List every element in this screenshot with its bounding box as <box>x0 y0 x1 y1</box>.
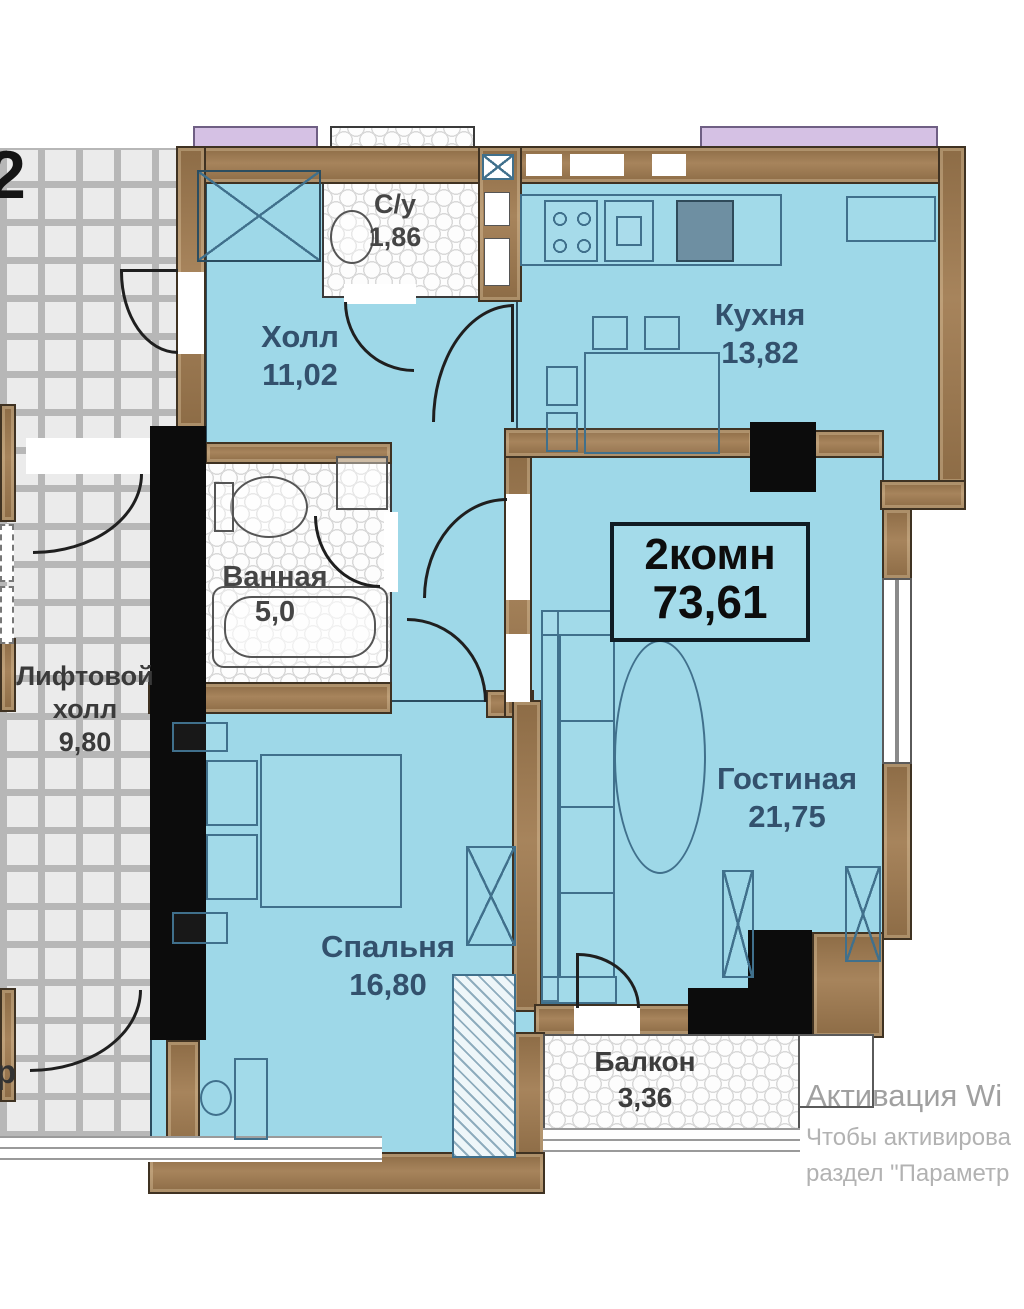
room-label-bathroom: Ванная 5,0 <box>205 560 345 631</box>
corridor-partial-text: р <box>0 1052 36 1092</box>
elevator-door <box>0 586 14 644</box>
wall-slot <box>652 154 686 176</box>
toilet <box>230 476 308 538</box>
door-opening <box>506 494 530 600</box>
toilet-tank <box>214 482 234 532</box>
kitchen-sink-bowl <box>616 216 642 246</box>
hall-name: Холл <box>230 318 370 356</box>
kitchen-counter-right <box>846 196 936 242</box>
watermark-line2: Чтобы активирова <box>806 1124 1011 1152</box>
chair <box>644 316 680 350</box>
wall <box>882 762 912 940</box>
wc-name: С/у <box>330 188 460 221</box>
room-label-kitchen: Кухня 13,82 <box>690 296 830 372</box>
nightstand <box>172 722 228 752</box>
apartment-badge: 2комн 73,61 <box>610 522 810 642</box>
hall-wardrobe <box>197 170 321 262</box>
wall-slot <box>570 154 624 176</box>
window <box>882 578 912 764</box>
bedroom-name: Спальня <box>318 928 458 966</box>
pillow <box>206 834 258 900</box>
wall <box>814 430 884 458</box>
radiator-symbol <box>845 866 881 962</box>
wall-black <box>750 422 816 492</box>
badge-area: 73,61 <box>614 578 806 626</box>
floor-number: 2 <box>0 134 48 217</box>
door-opening <box>506 634 530 702</box>
balcony-name: Балкон <box>580 1044 710 1080</box>
corridor-bottom-wall <box>0 1136 382 1162</box>
living-name: Гостиная <box>712 760 862 798</box>
room-label-balcony: Балкон 3,36 <box>580 1044 710 1117</box>
wall-black <box>688 988 750 1036</box>
stove-icon <box>544 200 598 262</box>
room-label-bedroom: Спальня 16,80 <box>318 928 458 1004</box>
bedroom-area: 16,80 <box>318 966 458 1004</box>
desk-chair <box>200 1080 232 1116</box>
wall <box>938 146 966 484</box>
room-label-living: Гостиная 21,75 <box>712 760 862 836</box>
living-area: 21,75 <box>712 798 862 836</box>
wall-black <box>748 930 812 1036</box>
kitchen-name: Кухня <box>690 296 830 334</box>
door-leaf <box>120 269 178 272</box>
hall-area: 11,02 <box>230 356 370 394</box>
elevator-hall-name-2: холл <box>4 693 166 726</box>
bathroom-name: Ванная <box>205 560 345 595</box>
door-leaf <box>576 953 579 1008</box>
room-label-wc: С/у 1,86 <box>330 188 460 254</box>
wall <box>512 700 542 1012</box>
watermark-line1: Активация Wi <box>806 1078 1002 1114</box>
door-opening <box>384 512 398 592</box>
vent-shaft <box>484 192 510 226</box>
sofa-seat <box>559 634 615 978</box>
bath-sink <box>336 456 388 510</box>
wall <box>882 508 912 580</box>
wardrobe-hatch <box>452 974 516 1158</box>
room-label-hall: Холл 11,02 <box>230 318 370 394</box>
chair <box>546 412 578 452</box>
kitchen-area: 13,82 <box>690 334 830 372</box>
floor-plan: С/у 1,86 Холл 11,02 Кухня 13,82 Ванная 5… <box>0 0 1024 1309</box>
chair <box>546 366 578 406</box>
door-opening <box>574 1006 640 1034</box>
badge-type: 2комн <box>614 532 806 578</box>
balcony-railing <box>543 1128 800 1152</box>
wc-area: 1,86 <box>330 221 460 254</box>
vent-shaft-icon <box>482 154 514 180</box>
balcony-area: 3,36 <box>580 1080 710 1116</box>
watermark-line3: раздел "Параметр <box>806 1160 1009 1188</box>
nightstand <box>172 912 228 944</box>
sofa-back <box>541 610 559 1002</box>
elevator-door <box>0 524 14 582</box>
wall-slot <box>526 154 562 176</box>
bed <box>260 754 402 908</box>
door-opening <box>178 272 204 354</box>
room-label-elevator-hall: Лифтовой холл 9,80 <box>4 660 166 759</box>
sofa-arm <box>541 610 617 636</box>
pillow <box>206 760 258 826</box>
vent-shaft <box>484 238 510 286</box>
chair <box>592 316 628 350</box>
wall <box>514 1032 545 1160</box>
elevator-hall-area: 9,80 <box>4 726 166 759</box>
radiator-symbol <box>722 870 754 978</box>
wall <box>880 480 966 510</box>
desk <box>234 1058 268 1140</box>
fridge <box>676 200 734 262</box>
bathroom-area: 5,0 <box>205 595 345 630</box>
rug-oval <box>614 640 706 874</box>
wall <box>0 404 16 522</box>
radiator-symbol <box>466 846 516 946</box>
door-leaf <box>511 304 514 422</box>
door-opening <box>344 284 416 304</box>
elevator-hall-name-1: Лифтовой <box>4 660 166 693</box>
